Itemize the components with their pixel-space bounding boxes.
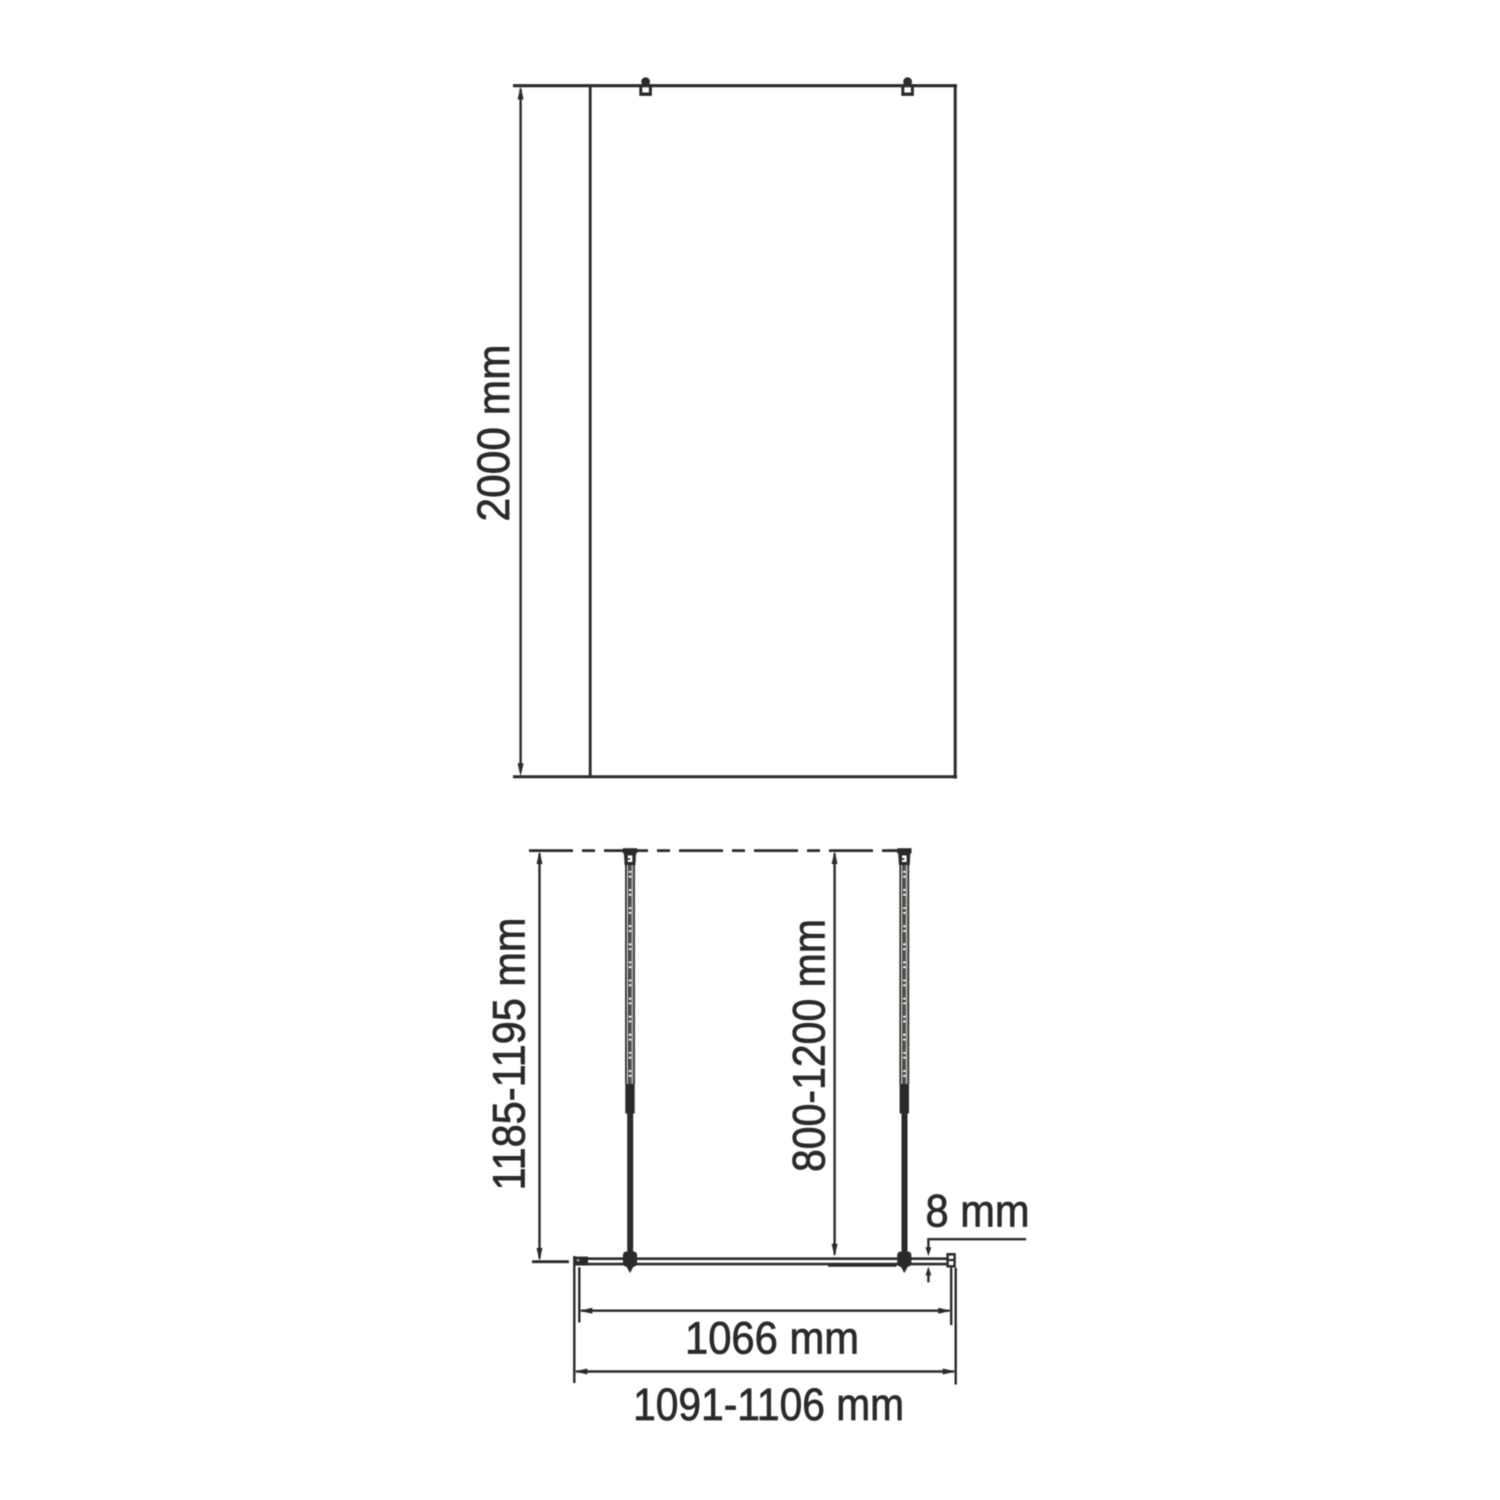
svg-text:1091-1106 mm: 1091-1106 mm (633, 1379, 904, 1430)
svg-text:8 mm: 8 mm (926, 1186, 1030, 1237)
svg-text:800-1200 mm: 800-1200 mm (784, 919, 835, 1172)
svg-text:1066 mm: 1066 mm (685, 1313, 859, 1364)
svg-text:1185-1195 mm: 1185-1195 mm (484, 918, 535, 1191)
svg-text:2000 mm: 2000 mm (468, 345, 519, 522)
